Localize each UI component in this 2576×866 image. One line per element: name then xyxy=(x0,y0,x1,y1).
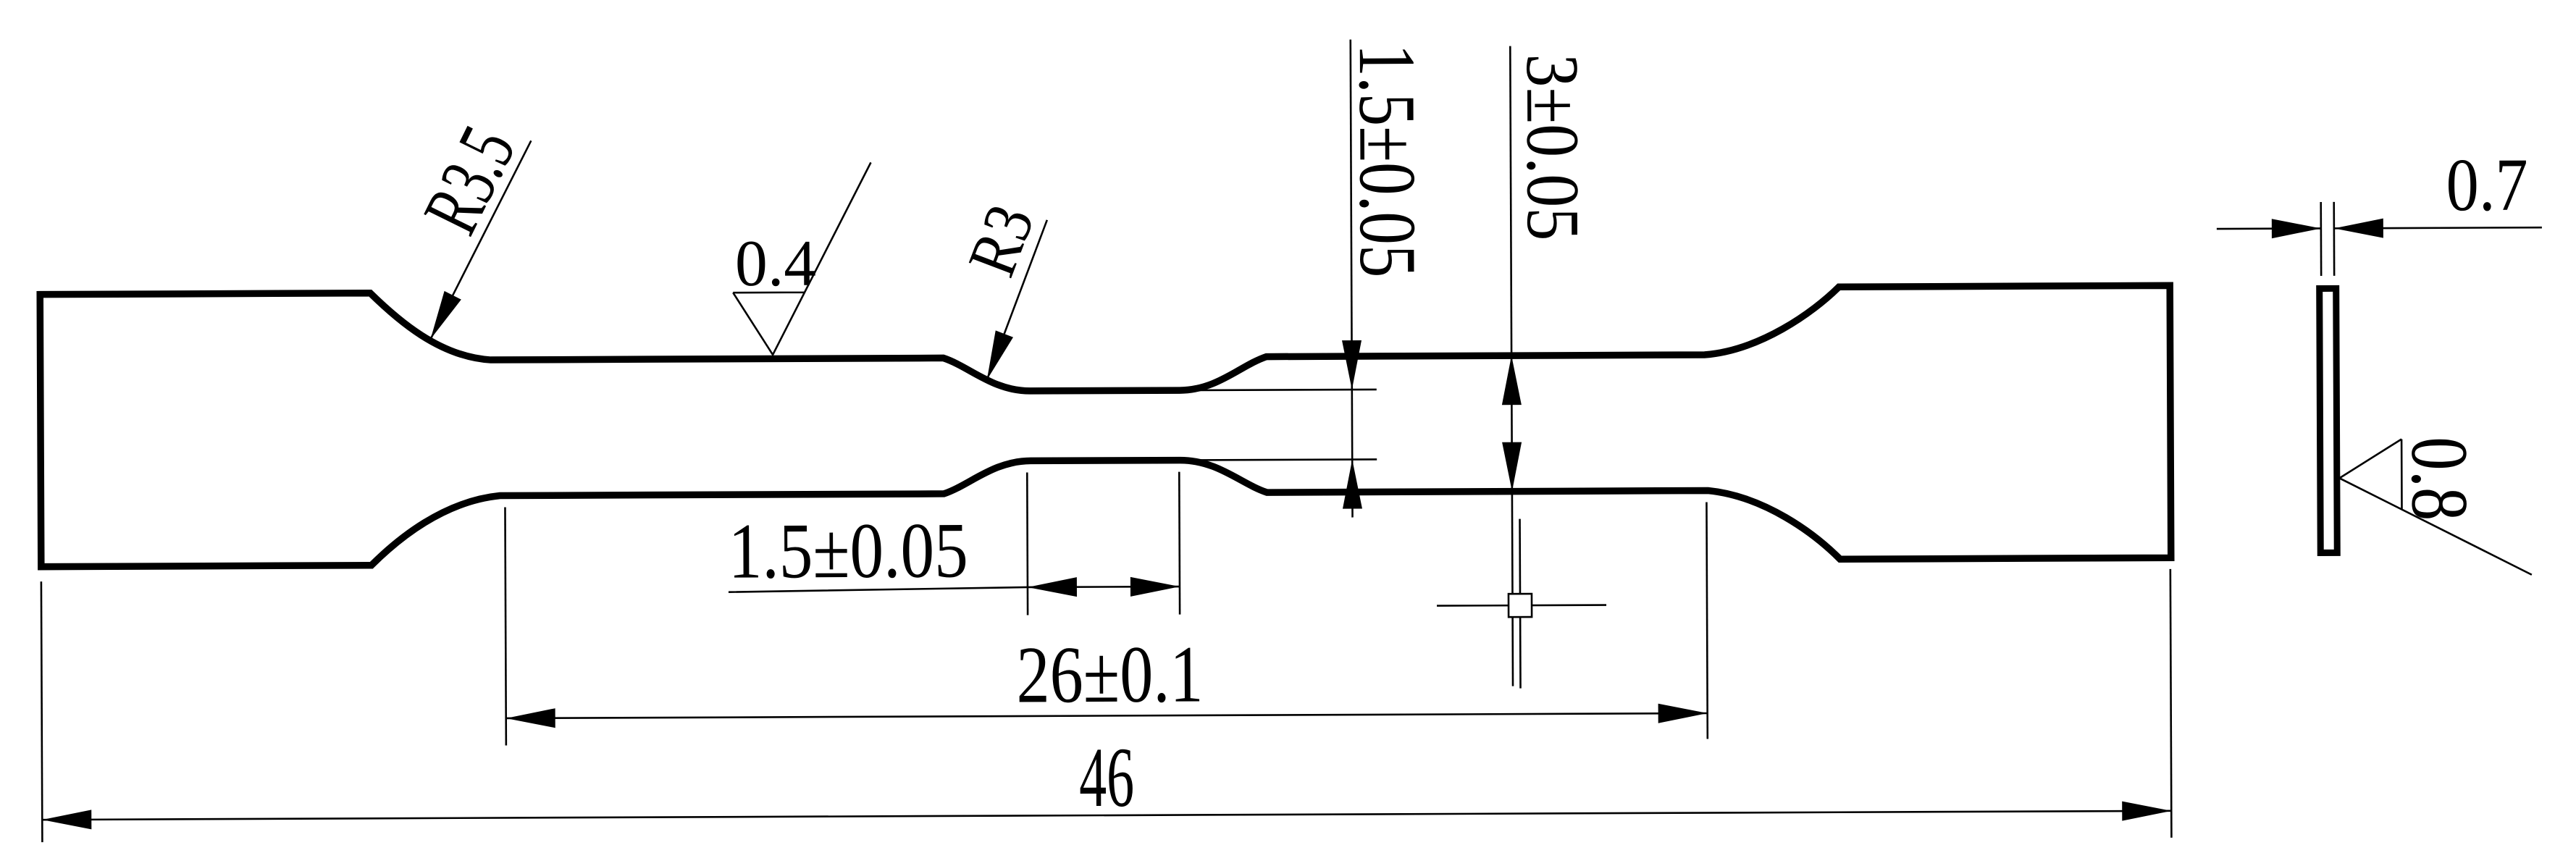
svg-text:0.8: 0.8 xyxy=(2394,437,2484,521)
svg-text:3±0.05: 3±0.05 xyxy=(1511,54,1595,240)
svg-text:46: 46 xyxy=(1079,730,1135,825)
svg-text:1.5±0.05: 1.5±0.05 xyxy=(1342,43,1432,278)
svg-text:26±0.1: 26±0.1 xyxy=(1016,629,1204,720)
svg-text:0.7: 0.7 xyxy=(2446,143,2527,227)
svg-text:0.4: 0.4 xyxy=(735,227,816,300)
svg-text:1.5±0.05: 1.5±0.05 xyxy=(728,506,968,594)
